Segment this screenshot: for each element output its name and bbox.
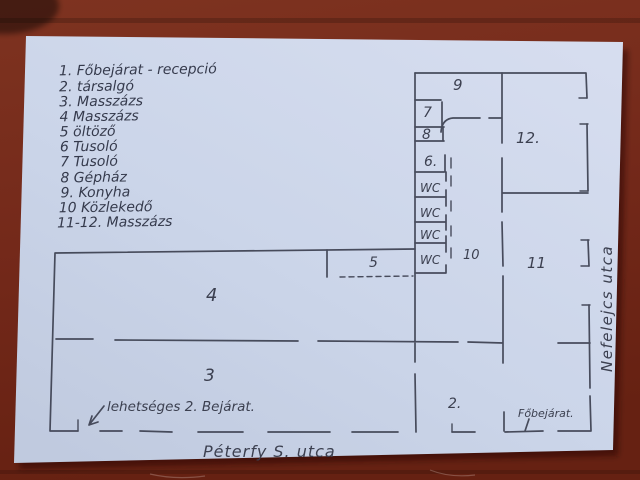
- room-label-wc: WC: [420, 253, 441, 267]
- legend-item: 7 Tusoló: [60, 154, 118, 171]
- legend-item: 11-12. Masszázs: [57, 214, 173, 232]
- room-label-9: 9: [453, 76, 463, 94]
- room-label-wc: WC: [420, 228, 441, 242]
- room-label-7: 7: [423, 105, 432, 121]
- room-label-3: 3: [204, 366, 215, 386]
- room-label-12: 12.: [516, 129, 540, 147]
- possible-entrance-note: lehetséges 2. Bejárat.: [107, 399, 255, 415]
- table-grain-streak: [0, 18, 640, 23]
- photo-of-floorplan-sketch: 1. Főbejárat - recepció 2. társalgó 3. M…: [0, 0, 640, 480]
- street-name-right: Nefelejcs utca: [598, 245, 616, 372]
- room-label-5: 5: [369, 255, 378, 271]
- sketch-canvas: 1. Főbejárat - recepció 2. társalgó 3. M…: [0, 0, 640, 480]
- room-label-wc: WC: [420, 181, 441, 195]
- room-label-8: 8: [422, 127, 431, 143]
- room-label-4: 4: [206, 285, 217, 306]
- street-name-bottom: Péterfy S. utca: [203, 442, 336, 461]
- room-label-10: 10: [463, 248, 480, 263]
- main-entrance-note: Főbejárat.: [518, 407, 574, 420]
- legend-item: 1. Főbejárat - recepció: [59, 61, 218, 79]
- table-grain-streak: [0, 470, 640, 474]
- legend-item: 4 Masszázs: [59, 108, 138, 125]
- room-label-6: 6.: [424, 154, 437, 170]
- room-label-wc: WC: [420, 206, 441, 220]
- room-label-2: 2.: [448, 396, 461, 412]
- room-label-11: 11: [527, 254, 546, 272]
